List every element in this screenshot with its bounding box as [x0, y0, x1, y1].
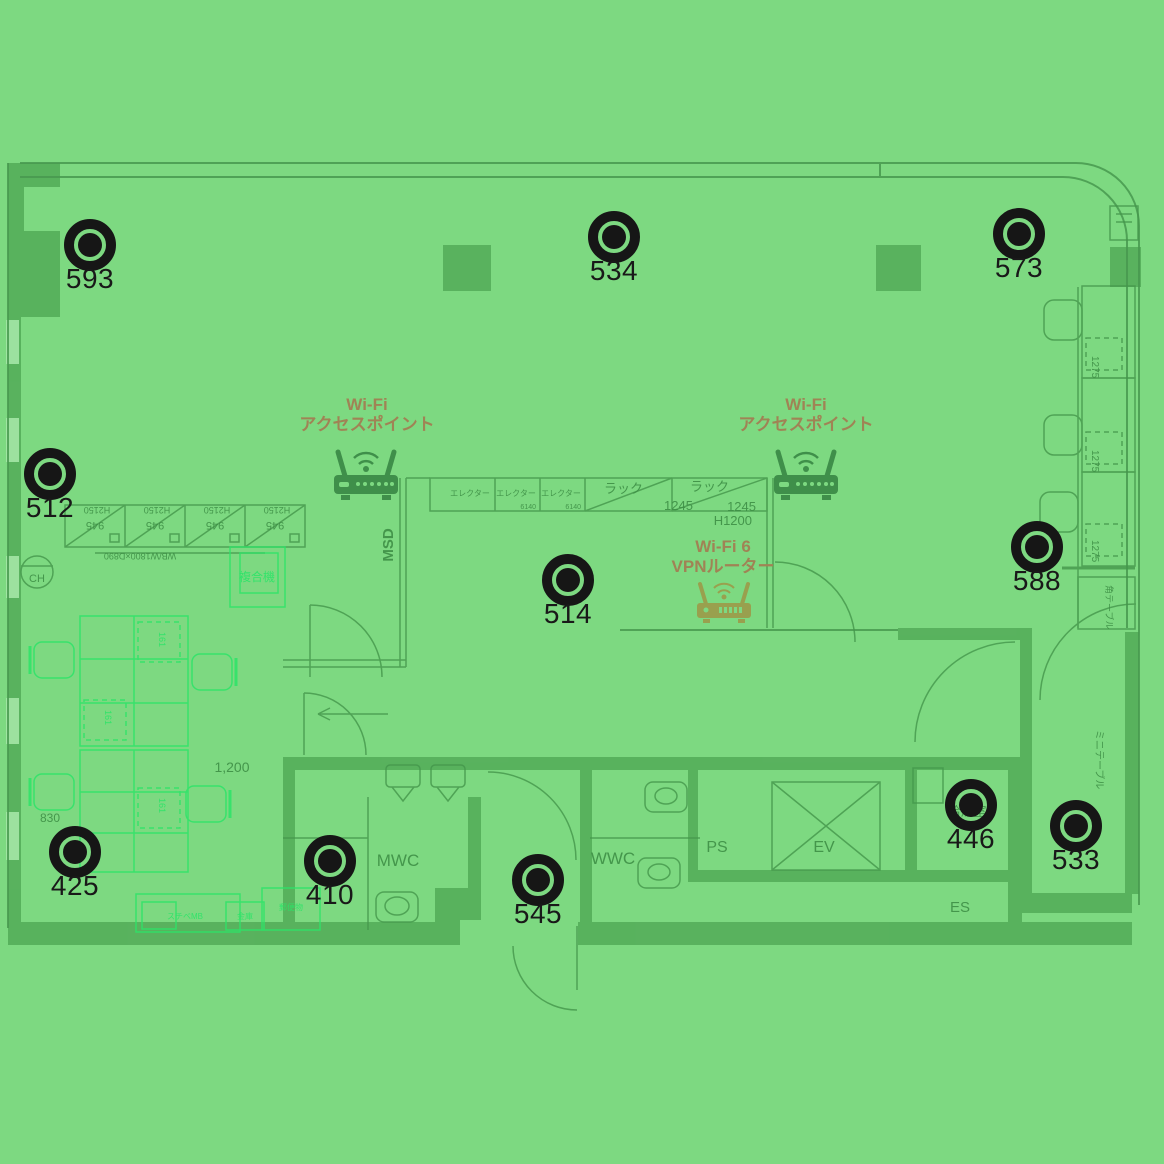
- rack-height: H1200: [714, 513, 752, 528]
- rack-label: ラック: [604, 481, 643, 496]
- measurement-value: 512: [0, 492, 120, 524]
- measurement-value: 588: [967, 565, 1107, 597]
- dim-aisle: 1,200: [214, 759, 249, 775]
- cabinet-height: H2150: [144, 505, 171, 515]
- ap-right-label-line2: アクセスポイント: [686, 415, 926, 435]
- bullseye-center-dot: [556, 568, 580, 592]
- cabinet-dim: 945: [266, 519, 284, 531]
- sub-dim: 161: [103, 710, 113, 725]
- cabinet-height: H2150: [204, 505, 231, 515]
- rack-dim: 1245: [664, 498, 693, 513]
- desk-dim: 1275: [1089, 540, 1100, 563]
- bullseye-center-dot: [526, 868, 550, 892]
- copier-label: 複合機: [239, 569, 275, 584]
- desk-dim: 1275: [1089, 450, 1100, 473]
- cabinet-dim: 945: [146, 519, 164, 531]
- shelf-dim: 6140: [520, 504, 536, 511]
- cabinet-height: H2150: [264, 505, 291, 515]
- room-label-wwc: WWC: [591, 849, 635, 868]
- wifi-router-icon[interactable]: [770, 444, 842, 502]
- rack-dim: 1245: [727, 499, 756, 514]
- shelf-label: エレクター: [541, 489, 581, 498]
- bullseye-center-dot: [1025, 535, 1049, 559]
- bullseye-center-dot: [63, 840, 87, 864]
- ap-right-label-line1: Wi-Fi: [686, 395, 926, 415]
- bullseye-center-dot: [602, 225, 626, 249]
- measurement-value: 410: [260, 879, 400, 911]
- safe-label: 金庫: [237, 911, 253, 921]
- room-label-mwc: MWC: [377, 851, 419, 870]
- room-label-ch: CH: [29, 573, 45, 585]
- desk-dim: 1275: [1089, 356, 1100, 379]
- bullseye-center-dot: [959, 793, 983, 817]
- vpn-router-label-line1: Wi-Fi 6: [603, 537, 843, 557]
- measurement-value: 425: [5, 870, 145, 902]
- ap-left-label-line1: Wi-Fi: [247, 395, 487, 415]
- room-label-msd: MSD: [380, 528, 397, 562]
- vpn-router-label-line2: VPNルーター: [603, 557, 843, 577]
- wifi-heatmap-canvas: MWC WWC PS EV ES 給湯室 MSD CH エレクター エレクター …: [0, 0, 1164, 1164]
- measurement-value: 545: [468, 898, 608, 930]
- ap-left-label-line2: アクセスポイント: [247, 415, 487, 435]
- mini-table-label: ミニテーブル: [1093, 730, 1106, 789]
- furniture-text: 複合機 161 161 161 スチベMB 金庫 郵便物: [103, 569, 303, 921]
- measurement-value: 534: [544, 255, 684, 287]
- shelf-dim: 6140: [565, 504, 581, 511]
- cabinet-dim: 945: [206, 519, 224, 531]
- dim-wall: 830: [40, 811, 60, 825]
- vpn-router-icon[interactable]: [694, 576, 754, 624]
- vpn-router-label: Wi-Fi 6 VPNルーター: [603, 537, 843, 577]
- whiteboard-label: WB/W1800×D890: [104, 551, 176, 561]
- wifi-router-icon[interactable]: [330, 444, 402, 502]
- shelf-label: エレクター: [496, 489, 536, 498]
- bullseye-center-dot: [318, 849, 342, 873]
- room-label-ps: PS: [706, 839, 727, 856]
- rack-label: ラック: [690, 479, 729, 494]
- bullseye-center-dot: [78, 233, 102, 257]
- measurement-value: 533: [1006, 844, 1146, 876]
- bullseye-center-dot: [1064, 814, 1088, 838]
- bullseye-center-dot: [1007, 222, 1031, 246]
- measurement-value: 593: [20, 263, 160, 295]
- sub-dim: 161: [157, 798, 167, 813]
- measurement-value: 514: [498, 598, 638, 630]
- shelf-label: エレクター: [450, 489, 490, 498]
- measurement-value: 573: [949, 252, 1089, 284]
- bullseye-center-dot: [38, 462, 62, 486]
- ap-left-label: Wi-Fi アクセスポイント: [247, 395, 487, 435]
- ap-right-label: Wi-Fi アクセスポイント: [686, 395, 926, 435]
- room-label-ev: EV: [813, 839, 835, 856]
- sub-dim: 161: [157, 632, 167, 647]
- wall-cutouts: [24, 187, 578, 946]
- room-label-es: ES: [950, 899, 970, 916]
- cabinet-mb-label: スチベMB: [167, 912, 203, 921]
